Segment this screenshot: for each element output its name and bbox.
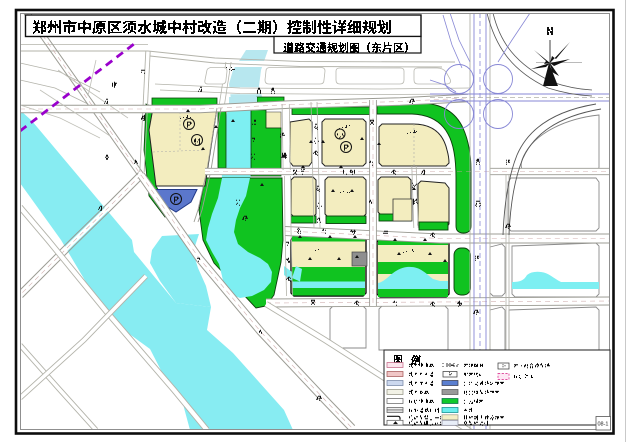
svg-text:08-1: 08-1 bbox=[597, 422, 608, 428]
